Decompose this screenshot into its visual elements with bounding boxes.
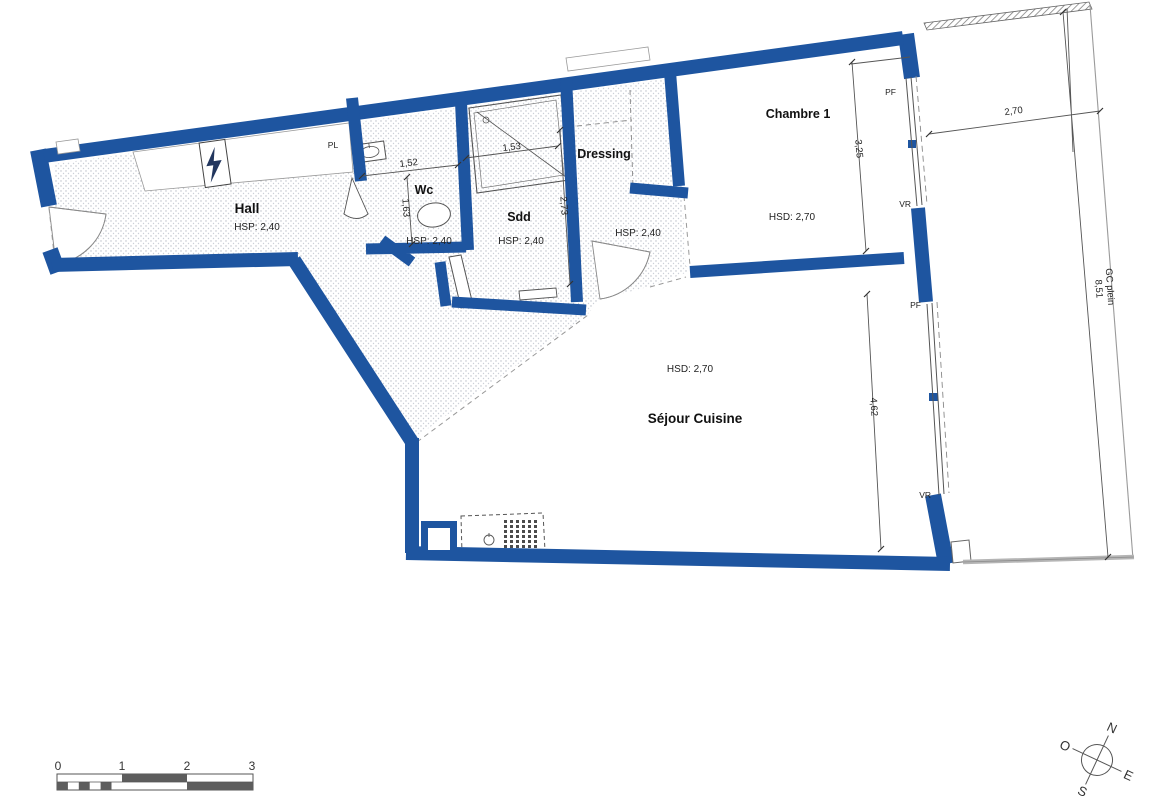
scale-bar-segment [187, 782, 253, 790]
electrical-panel [199, 139, 231, 187]
wc-label: Wc [415, 183, 434, 197]
sdd-depth-dim: 2,73 [557, 196, 569, 215]
sejour-depth-dim: 4,62 [868, 397, 880, 416]
scale-bar-segment [57, 782, 68, 790]
scale-tick-3: 3 [249, 759, 256, 773]
vr-top-label: VR [899, 199, 911, 209]
sdd-label: Sdd [507, 210, 531, 224]
shower-width-dim: 1,53 [502, 141, 522, 154]
scale-tick-2: 2 [184, 759, 191, 773]
sdd-height: HSP: 2,40 [498, 236, 544, 247]
closet-label: PL [328, 140, 339, 150]
wall-niche [56, 139, 80, 154]
chambre-height: HSD: 2,70 [769, 212, 816, 223]
wall-step [951, 540, 971, 563]
hob-icon [504, 520, 538, 550]
compass-west: O [1057, 737, 1073, 755]
dressing-label: Dressing [577, 147, 631, 161]
chambre-depth-dim: 3,25 [852, 139, 865, 158]
chambre-floor [676, 50, 906, 266]
hall-height: HSP: 2,40 [234, 222, 280, 233]
pf-mid-label: PF [910, 300, 921, 310]
scale-bar-segment [79, 782, 90, 790]
wall-niche [566, 47, 650, 71]
floorplan-page: 1,52 1,63 1,53 2,73 3,25 4,62 2,70 GC pl… [0, 0, 1176, 800]
scale-bar-segment [122, 774, 187, 782]
sejour-label: Séjour Cuisine [648, 411, 743, 426]
vr-bottom-label: VR [919, 490, 931, 500]
sejour-height: HSD: 2,70 [667, 364, 714, 375]
duct-shaft [425, 525, 454, 554]
wc-width-dim: 1,52 [399, 157, 419, 170]
balcony-railing-top [924, 2, 1092, 30]
corridor-height: HSP: 2,40 [615, 228, 661, 239]
wc-height: HSP: 2,40 [406, 236, 452, 247]
scale-tick-0: 0 [55, 759, 62, 773]
compass-south: S [1075, 783, 1089, 800]
gc-plein-value: 8,51 [1092, 279, 1104, 298]
compass-east: E [1121, 767, 1135, 784]
scale-bar-segment [101, 782, 112, 790]
floorplan-drawing: 1,52 1,63 1,53 2,73 3,25 4,62 2,70 GC pl… [0, 0, 1176, 800]
compass-north: N [1105, 719, 1120, 737]
pf-top-label: PF [885, 87, 896, 97]
chambre-label: Chambre 1 [766, 107, 831, 121]
balcony-width-dim: 2,70 [1004, 105, 1024, 118]
compass-rose: N S E O [1043, 704, 1151, 800]
scale-tick-1: 1 [119, 759, 126, 773]
scale-bar: 0 1 2 3 [55, 759, 256, 790]
hall-label: Hall [235, 201, 260, 216]
compass-ew-axis [1073, 749, 1122, 772]
wc-depth-dim: 1,63 [399, 198, 411, 217]
